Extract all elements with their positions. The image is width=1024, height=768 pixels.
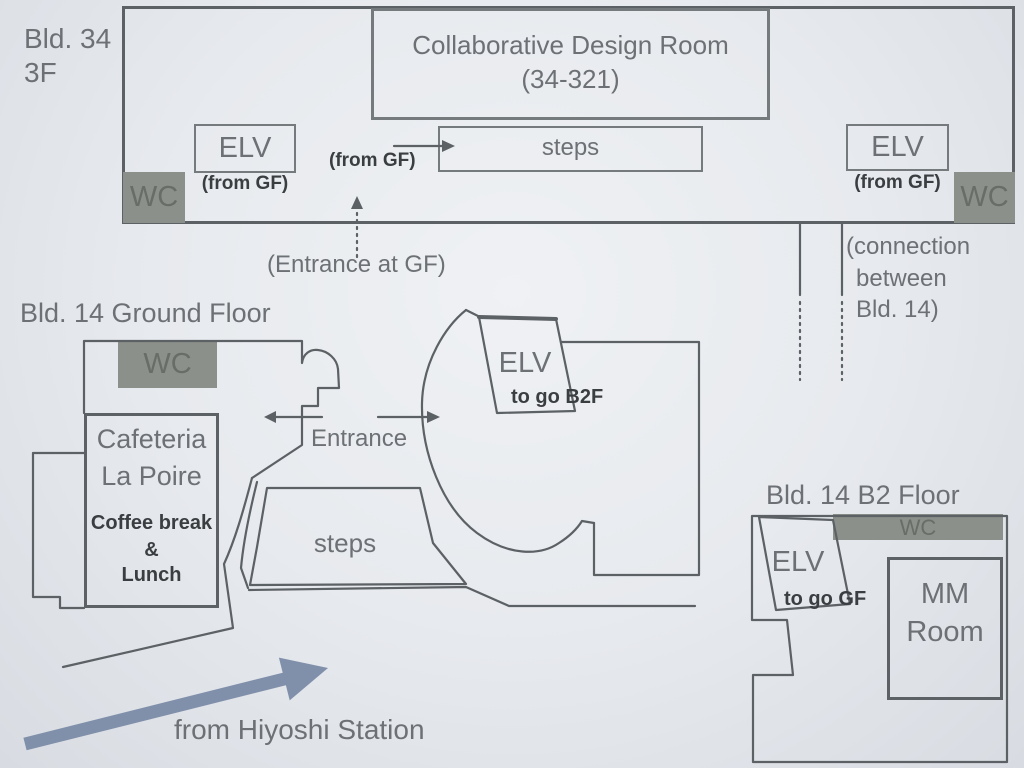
floor-map-slide: Bld. 34 3F Collaborative Design Room (34… — [0, 0, 1024, 768]
cafeteria-sub1: Coffee break — [84, 512, 219, 535]
bld34-name-line2: 3F — [24, 56, 111, 90]
gf-elv-note: to go B2F — [511, 386, 603, 409]
b2-elv-note: to go GF — [784, 588, 866, 611]
wc-right-label-3f: WC — [954, 172, 1015, 222]
wc-left-label-3f: WC — [123, 172, 185, 222]
oval-top-joint — [466, 310, 480, 317]
entrance-arrow-left-head — [264, 411, 276, 423]
gf-steps-label: steps — [306, 528, 384, 559]
b2-elv-label: ELV — [768, 546, 828, 579]
connection-note-line1: (connection — [846, 233, 970, 261]
cafeteria-name-line2: La Poire — [84, 461, 219, 492]
wc-label-b2: WC — [833, 514, 1003, 541]
mm-room-line2: Room — [887, 613, 1003, 651]
mm-room-label: MM Room — [887, 575, 1003, 651]
connection-note-line3: Bld. 14) — [856, 296, 939, 324]
cafeteria-sub3: Lunch — [84, 564, 219, 587]
walkway-bottom-line — [249, 587, 695, 606]
wc-label-gf: WC — [118, 340, 217, 388]
gf-elv-label: ELV — [494, 347, 556, 380]
cafeteria-name-line1: Cafeteria — [84, 424, 219, 455]
steps-label-3f: steps — [438, 126, 703, 170]
mm-room-line1: MM — [887, 575, 1003, 613]
from-station-label: from Hiyoshi Station — [174, 714, 425, 746]
entrance-arrow-right-head — [427, 411, 440, 423]
bld14-b2-title: Bld. 14 B2 Floor — [766, 480, 960, 511]
entrance-at-gf-note: (Entrance at GF) — [267, 251, 446, 279]
room-number-line2: (34-321) — [371, 62, 770, 96]
gf-right-hall-outline — [561, 342, 699, 575]
bld34-name-line1: Bld. 34 — [24, 22, 111, 56]
from-gf-note: (from GF) — [329, 150, 416, 172]
walkway-right-edge — [241, 482, 257, 588]
elv-left-label: ELV — [194, 126, 296, 171]
collaborative-design-room-label: Collaborative Design Room (34-321) — [371, 28, 770, 96]
gf-elv-top-edge — [479, 317, 556, 319]
elv-right-note: (from GF) — [841, 172, 954, 194]
connection-note-line2: between — [856, 265, 947, 293]
elv-right-label: ELV — [846, 126, 949, 169]
cafeteria-sub2: & — [84, 539, 219, 562]
elv-left-note: (from GF) — [189, 173, 301, 195]
room-name-line1: Collaborative Design Room — [371, 28, 770, 62]
bld14-gf-title: Bld. 14 Ground Floor — [20, 298, 271, 329]
bld34-name: Bld. 34 3F — [24, 22, 111, 90]
cafeteria-annex-outline — [33, 453, 84, 608]
entrance-label: Entrance — [311, 425, 407, 453]
